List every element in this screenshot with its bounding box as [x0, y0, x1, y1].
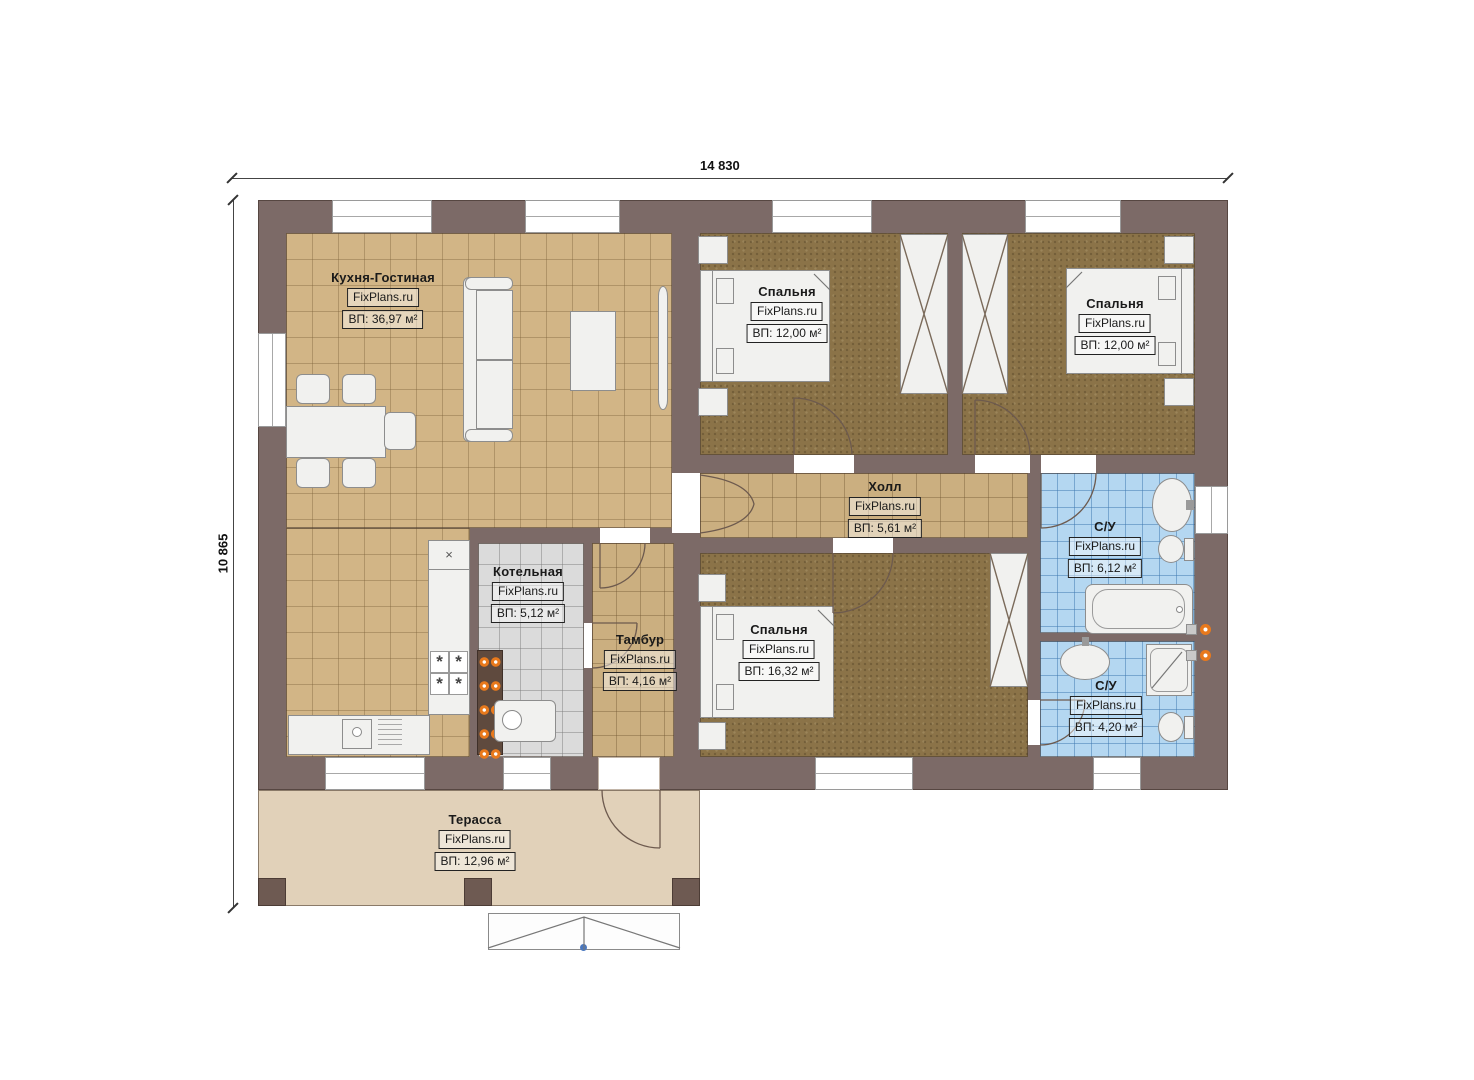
- pillow: [1158, 276, 1176, 300]
- door-opening-bedroom-2: [975, 455, 1030, 473]
- nightstand: [1164, 236, 1194, 264]
- watermark: FixPlans.ru: [743, 640, 815, 659]
- watermark: FixPlans.ru: [1079, 314, 1151, 333]
- knob-indicator-icon: [477, 748, 503, 760]
- chair: [296, 374, 330, 404]
- room-name: Спальня: [1075, 296, 1156, 311]
- sofa-armrest: [465, 277, 513, 290]
- room-label-hall: Холл FixPlans.ru ВП: 5,61 м²: [848, 479, 922, 538]
- room-label-bedroom-2: Спальня FixPlans.ru ВП: 12,00 м²: [1075, 296, 1156, 355]
- bed-headboard: [700, 606, 713, 718]
- terrace-column: [672, 878, 700, 906]
- room-area: ВП: 16,32 м²: [739, 662, 820, 681]
- burner-icon: *: [430, 673, 449, 695]
- room-name: Котельная: [491, 564, 565, 579]
- room-area: ВП: 36,97 м²: [343, 310, 424, 329]
- room-area: ВП: 12,00 м²: [1075, 336, 1156, 355]
- outlet-icon: [1186, 624, 1197, 635]
- window-top-bedroom-1: [772, 200, 872, 233]
- pillow: [716, 278, 734, 304]
- room-label-kitchen-living: Кухня-Гостиная FixPlans.ru ВП: 36,97 м²: [331, 270, 435, 329]
- knob-indicator-icon: [477, 680, 503, 692]
- room-label-bathroom-1: С/У FixPlans.ru ВП: 6,12 м²: [1068, 519, 1142, 578]
- chair: [296, 458, 330, 488]
- dimension-width-label: 14 830: [700, 158, 740, 173]
- dimension-height-label: 10 865: [216, 519, 231, 589]
- window-left-kitchen: [258, 333, 286, 427]
- room-name: Тамбур: [603, 632, 677, 647]
- room-label-bedroom-3: Спальня FixPlans.ru ВП: 16,32 м²: [739, 622, 820, 681]
- window-top-kitchen-1: [332, 200, 432, 233]
- dining-table: [286, 406, 386, 458]
- watermark: FixPlans.ru: [604, 650, 676, 669]
- window-bottom-bedroom-3: [815, 757, 913, 790]
- watermark: FixPlans.ru: [347, 288, 419, 307]
- room-name: Кухня-Гостиная: [331, 270, 435, 285]
- valve-icon: [1200, 624, 1211, 635]
- room-area: ВП: 6,12 м²: [1068, 559, 1142, 578]
- toilet-bowl: [1158, 535, 1184, 563]
- bathroom-sink: [1060, 644, 1110, 680]
- wall-shelf: [658, 286, 668, 410]
- service-point: [1186, 648, 1220, 662]
- chair: [342, 458, 376, 488]
- sofa-cushion: [476, 290, 513, 360]
- room-label-bathroom-2: С/У FixPlans.ru ВП: 4,20 м²: [1069, 678, 1143, 737]
- chair: [384, 412, 416, 450]
- floor-plan-canvas: 14 830 10 865: [0, 0, 1474, 1080]
- wardrobe: [990, 553, 1028, 687]
- door-opening-bathroom-1: [1041, 455, 1096, 473]
- watermark: FixPlans.ru: [439, 830, 511, 849]
- valve-icon: [1200, 650, 1211, 661]
- door-opening-kitchen-vestibule: [600, 528, 650, 543]
- room-area: ВП: 12,00 м²: [747, 324, 828, 343]
- room-label-bedroom-1: Спальня FixPlans.ru ВП: 12,00 м²: [747, 284, 828, 343]
- room-area: ВП: 5,61 м²: [848, 519, 922, 538]
- door-opening-entrance: [598, 757, 660, 790]
- room-label-terrace: Терасса FixPlans.ru ВП: 12,96 м²: [435, 812, 516, 871]
- door-opening-bedroom-3: [833, 538, 893, 553]
- room-name: Холл: [848, 479, 922, 494]
- burner-icon: *: [449, 651, 468, 673]
- room-name: Спальня: [747, 284, 828, 299]
- room-name: Терасса: [435, 812, 516, 827]
- toilet-tank: [1184, 716, 1194, 739]
- sofa-armrest: [465, 429, 513, 442]
- door-opening-boiler-vestibule: [584, 623, 592, 668]
- room-area: ВП: 5,12 м²: [491, 604, 565, 623]
- bed-headboard: [1181, 268, 1194, 374]
- bed-headboard: [700, 270, 713, 382]
- nightstand: [698, 722, 726, 750]
- chair: [342, 374, 376, 404]
- pillow: [1158, 342, 1176, 366]
- stove: * * * *: [429, 650, 469, 696]
- burner-icon: *: [449, 673, 468, 695]
- nightstand: [1164, 378, 1194, 406]
- nightstand: [698, 388, 728, 416]
- room-area: ВП: 4,20 м²: [1069, 718, 1143, 737]
- shower-inner: [1150, 648, 1188, 692]
- room-area: ВП: 12,96 м²: [435, 852, 516, 871]
- outlet-icon: [1186, 650, 1197, 661]
- dimension-line-left: [233, 200, 234, 908]
- toilet-tank: [1184, 538, 1194, 561]
- watermark: FixPlans.ru: [849, 497, 921, 516]
- pillow: [716, 348, 734, 374]
- nightstand: [698, 236, 728, 264]
- pillow: [716, 614, 734, 640]
- room-name: С/У: [1069, 678, 1143, 693]
- faucet-icon: [1082, 637, 1089, 646]
- window-top-kitchen-2: [525, 200, 620, 233]
- sofa-cushion: [476, 360, 513, 429]
- window-bottom-kitchen: [325, 757, 425, 790]
- room-label-boiler: Котельная FixPlans.ru ВП: 5,12 м²: [491, 564, 565, 623]
- room-name: С/У: [1068, 519, 1142, 534]
- room-area: ВП: 4,16 м²: [603, 672, 677, 691]
- drain-icon: [1176, 606, 1183, 613]
- dimension-line-top: [232, 178, 1228, 179]
- window-bottom-bathroom-2: [1093, 757, 1141, 790]
- terrace-column: [464, 878, 492, 906]
- wardrobe: [962, 234, 1008, 394]
- room-name: Спальня: [739, 622, 820, 637]
- wardrobe: [900, 234, 948, 394]
- washer-door-icon: [502, 710, 522, 730]
- coffee-table: [570, 311, 616, 391]
- pillow: [716, 684, 734, 710]
- door-opening-kitchen-hall: [672, 473, 700, 533]
- window-bottom-boiler: [503, 757, 551, 790]
- nightstand: [698, 574, 726, 602]
- toilet-bowl: [1158, 712, 1184, 742]
- window-right-bathroom-1: [1195, 486, 1228, 534]
- bathtub-inner: [1092, 589, 1185, 629]
- door-opening-bedroom-1: [794, 455, 854, 473]
- burner-icon: *: [430, 651, 449, 673]
- faucet-icon: [1186, 500, 1194, 510]
- sink-drain-icon: [352, 727, 362, 737]
- watermark: FixPlans.ru: [1070, 696, 1142, 715]
- knob-indicator-icon: [477, 656, 503, 668]
- terrace-column: [258, 878, 286, 906]
- drainboard: [378, 719, 402, 749]
- room-label-vestibule: Тамбур FixPlans.ru ВП: 4,16 м²: [603, 632, 677, 691]
- door-opening-bathroom-2: [1028, 700, 1040, 745]
- watermark: FixPlans.ru: [751, 302, 823, 321]
- cross-mark-icon: ×: [428, 540, 470, 570]
- window-top-bedroom-2: [1025, 200, 1121, 233]
- sofa-back: [463, 277, 477, 442]
- entry-marker-icon: [580, 944, 587, 951]
- watermark: FixPlans.ru: [1069, 537, 1141, 556]
- watermark: FixPlans.ru: [492, 582, 564, 601]
- service-point: [1186, 622, 1220, 636]
